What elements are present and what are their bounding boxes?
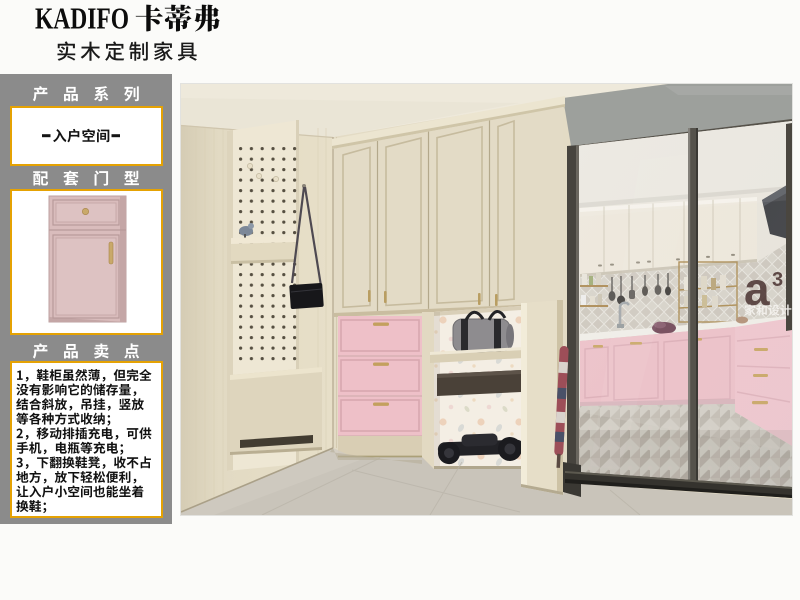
- svg-text:KADIFO: KADIFO: [35, 1, 129, 36]
